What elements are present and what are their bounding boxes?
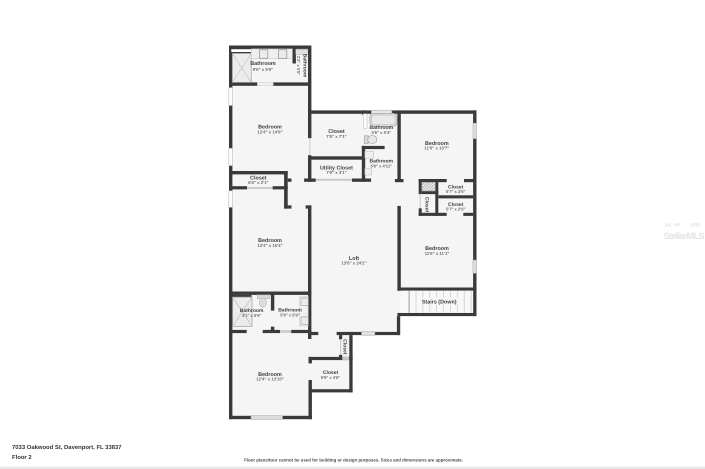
- svg-text:Floor plans/tour cannot be use: Floor plans/tour cannot be used for buil…: [244, 458, 463, 463]
- svg-text:5'6" x 5'4": 5'6" x 5'4": [372, 130, 392, 135]
- svg-text:5'9" x 5'9": 5'9" x 5'9": [280, 312, 300, 317]
- svg-text:9'8" x 5'6": 9'8" x 5'6": [253, 67, 273, 72]
- svg-text:7'8" x 7'1": 7'8" x 7'1": [326, 134, 346, 139]
- svg-text:Floor 2: Floor 2: [12, 454, 32, 461]
- svg-text:12'4" x 16'4": 12'4" x 16'4": [257, 243, 282, 248]
- svg-text:12'4" x 13'10": 12'4" x 13'10": [256, 377, 284, 382]
- svg-text:7033 Oakwood St, Davenport, FL: 7033 Oakwood St, Davenport, FL 33837: [12, 444, 122, 451]
- svg-text:Closet: Closet: [424, 197, 430, 213]
- svg-text:5'6" x 4'11": 5'6" x 4'11": [371, 163, 393, 168]
- svg-text:12'4" x 14'9": 12'4" x 14'9": [257, 129, 282, 134]
- svg-text:Closet: Closet: [341, 339, 347, 355]
- svg-text:Stairs (Down): Stairs (Down): [422, 300, 457, 306]
- svg-text:StellarMLS: StellarMLS: [664, 231, 705, 241]
- svg-text:5'9" x 4'6": 5'9" x 4'6": [321, 375, 341, 380]
- svg-text:7'9" x 3'1": 7'9" x 3'1": [326, 170, 346, 175]
- svg-text:Bathroom: Bathroom: [301, 54, 307, 78]
- svg-text:Bathroom: Bathroom: [250, 61, 276, 67]
- svg-text:5'7" x 2'6": 5'7" x 2'6": [446, 207, 466, 212]
- svg-text:11'6" x 11'1": 11'6" x 11'1": [425, 251, 450, 256]
- svg-text:8'8" x 2'1": 8'8" x 2'1": [248, 180, 268, 185]
- svg-text:2'2" x 5'5": 2'2" x 5'5": [296, 56, 301, 76]
- svg-text:5'7" x 2'6": 5'7" x 2'6": [446, 189, 466, 194]
- svg-text:11'6" x 10'7": 11'6" x 10'7": [424, 146, 449, 151]
- svg-text:4'1" x 5'9": 4'1" x 5'9": [242, 313, 262, 318]
- svg-text:13'8" x 24'2": 13'8" x 24'2": [341, 261, 366, 266]
